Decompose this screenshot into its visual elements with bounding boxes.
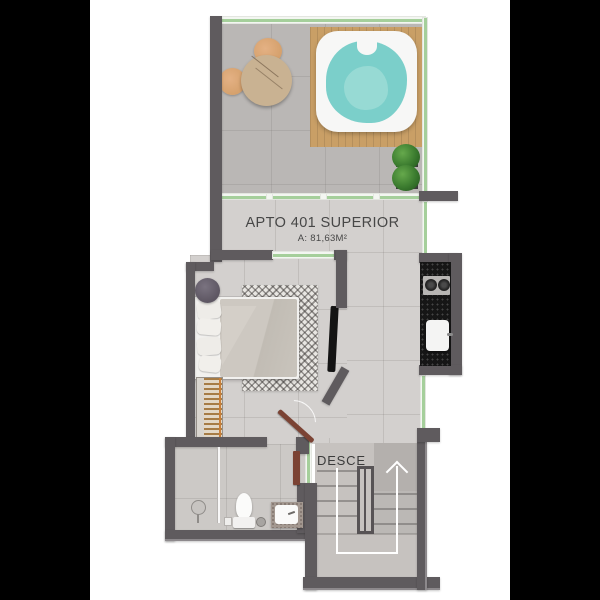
hot-tub-seat <box>344 66 388 110</box>
bedroom-right-wall <box>336 250 347 308</box>
apartment-title-block: APTO 401 SUPERIOR A: 81,63M² <box>225 215 420 244</box>
stairs-arrow-left-segment <box>336 468 338 554</box>
kitchen-lower-glass-window <box>420 375 426 429</box>
terrace-top-glass-wall <box>216 16 426 24</box>
toilet-tank <box>233 517 255 528</box>
stairs-arrow-bottom-segment <box>336 552 398 554</box>
terrace-sliding-door-panel <box>219 193 267 200</box>
bathroom-trash-bin <box>256 517 266 527</box>
terrace-right-glass-wall <box>422 17 428 202</box>
floorplan-canvas: APTO 401 SUPERIOR A: 81,63M² DESCE <box>0 0 600 600</box>
bed-pillow <box>196 318 221 336</box>
terrace-sliding-door-panel <box>379 193 424 200</box>
kitchen-bottom-stub-wall <box>419 365 462 375</box>
terrace-sliding-door-panel <box>326 193 374 200</box>
toilet-bowl <box>236 493 252 519</box>
plant <box>392 165 420 191</box>
bathroom-top-wall <box>165 437 267 447</box>
stairwell-top-right-stub <box>417 428 440 442</box>
stair-railing-inner-rail <box>364 469 366 531</box>
living-right-glass-window <box>422 201 427 254</box>
stairwell-right-wall <box>417 442 427 590</box>
cooktop-burner <box>425 279 437 291</box>
toilet-paper-holder <box>224 517 232 526</box>
bed-fold <box>222 306 262 368</box>
bedroom-window <box>272 251 336 259</box>
vanity-sink <box>275 505 298 524</box>
left-wall <box>210 16 222 262</box>
stairs-label: DESCE <box>317 453 366 468</box>
kitchen-sink <box>426 320 449 351</box>
shower-head <box>191 500 206 515</box>
bathroom-bottom-wall <box>165 530 313 541</box>
wardrobe-rod <box>219 378 221 437</box>
bathroom-left-wall <box>165 437 175 541</box>
shower-arm <box>197 514 199 523</box>
hot-tub-water-notch <box>357 38 377 55</box>
bed-pillow <box>198 355 222 374</box>
bed-pillow <box>196 336 221 356</box>
terrace-table <box>241 55 292 106</box>
kitchen-faucet <box>447 333 453 336</box>
stairwell-left-wall <box>305 483 317 590</box>
bedroom-top-wall <box>211 250 273 260</box>
terrace-sliding-door-panel <box>272 193 321 200</box>
bedroom-left-wall <box>186 262 195 440</box>
apartment-area: A: 81,63M² <box>225 233 420 244</box>
shower-glass-screen <box>217 447 220 523</box>
apartment-title: APTO 401 SUPERIOR <box>225 215 420 231</box>
cooktop-burner <box>438 279 450 291</box>
terrace-divider-right-stub <box>419 191 458 201</box>
bathroom-door <box>293 451 300 485</box>
nightstand <box>195 278 220 303</box>
